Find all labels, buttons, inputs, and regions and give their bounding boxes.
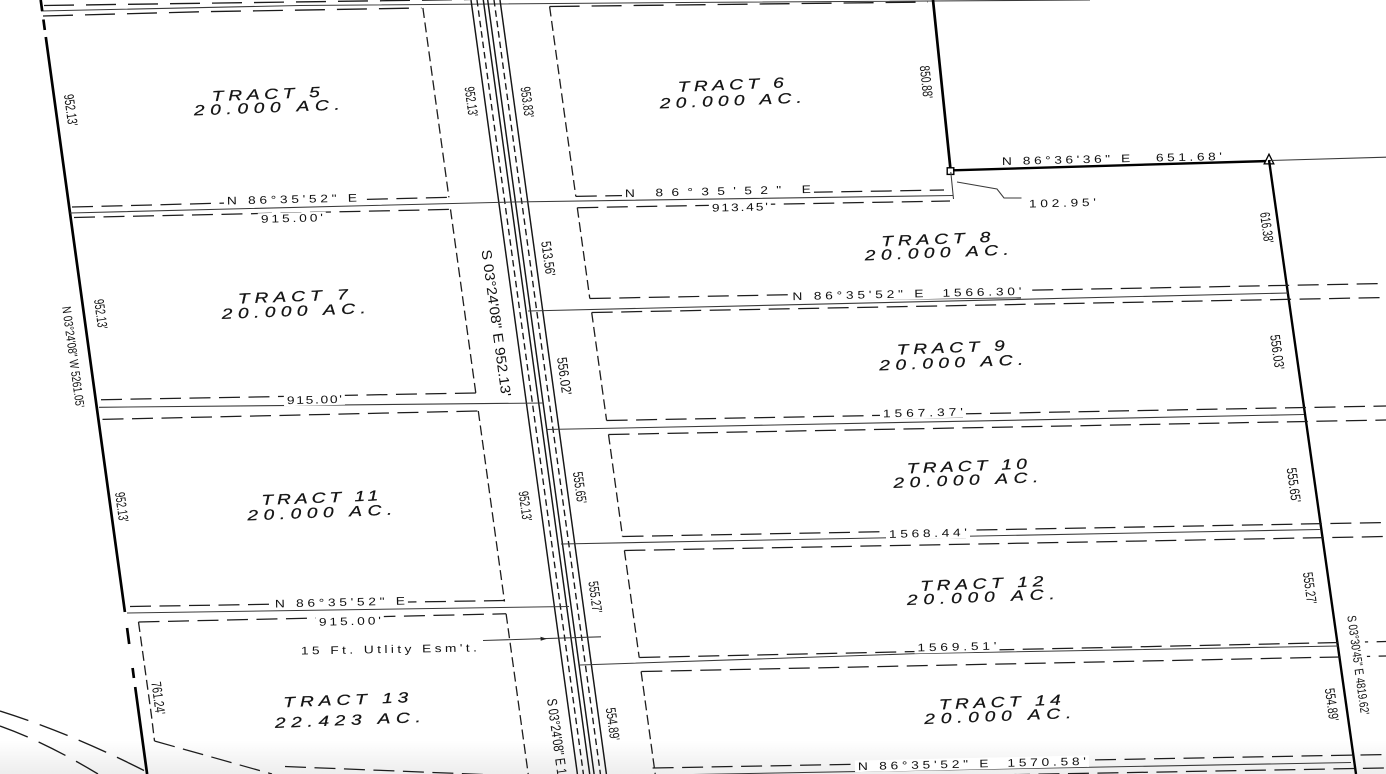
svg-text:1567.37': 1567.37' bbox=[883, 406, 963, 420]
svg-text:1569.51': 1569.51' bbox=[917, 640, 996, 654]
svg-text:1568.44': 1568.44' bbox=[889, 526, 967, 540]
